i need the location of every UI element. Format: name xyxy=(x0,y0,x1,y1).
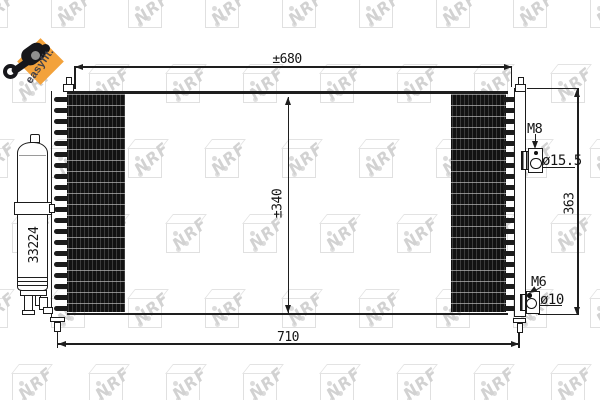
nrf-watermark-tile: NRF xyxy=(239,357,297,400)
fin-stub-left xyxy=(54,284,69,289)
nrf-watermark-tile: NRF xyxy=(355,282,413,340)
dim-side-height-label: 363 xyxy=(563,187,578,221)
part-number-label: 33224 xyxy=(27,220,41,270)
nrf-watermark-tile: NRF xyxy=(547,357,600,400)
nrf-watermark-tile: NRF xyxy=(278,0,336,40)
fin-stub-left xyxy=(54,251,69,256)
nrf-watermark-tile: NRF xyxy=(8,357,66,400)
upper-leader-arrow xyxy=(532,141,538,149)
top-cap-right-base xyxy=(515,84,526,93)
dim-ext-top xyxy=(527,88,579,89)
nrf-watermark-tile: NRF xyxy=(586,132,600,190)
dim-arrow-down xyxy=(285,305,291,313)
fin-stub-left xyxy=(54,273,69,278)
core-fin-block-right xyxy=(451,94,506,312)
nrf-watermark-tile: NRF xyxy=(586,282,600,340)
right-tank xyxy=(514,88,526,317)
thread-label-lower: M6 xyxy=(531,274,546,290)
drier-rib xyxy=(18,285,48,286)
drier-outlet-foot xyxy=(22,310,35,315)
dim-arrow-down xyxy=(574,307,580,315)
nrf-watermark-tile: NRF xyxy=(162,357,220,400)
upper-fitting-dot xyxy=(534,151,539,156)
nrf-watermark-tile: NRF xyxy=(470,357,528,400)
fin-stub-left xyxy=(54,240,69,245)
nrf-watermark-tile: NRF xyxy=(201,282,259,340)
drier-elbow-horizontal xyxy=(43,307,53,314)
dim-arrow-right xyxy=(511,341,519,347)
nrf-watermark-tile: NRF xyxy=(162,207,220,265)
fin-stub-left xyxy=(54,262,69,267)
dim-arrow-up xyxy=(285,97,291,105)
dim-line xyxy=(288,97,290,313)
diameter-label-upper: ø15.5 xyxy=(542,153,582,169)
nrf-watermark-tile: NRF xyxy=(509,0,567,40)
fin-stub-left xyxy=(54,295,69,300)
fin-stub-left xyxy=(54,97,69,102)
dim-ext-bottom xyxy=(538,314,579,315)
dim-arrow-left xyxy=(75,64,83,70)
top-cap-left-base xyxy=(63,84,74,93)
dim-arrow-up xyxy=(574,89,580,97)
nrf-watermark-tile: NRF xyxy=(547,57,600,115)
dim-pin-width-label: 710 xyxy=(264,330,312,345)
fin-stub-left xyxy=(54,306,69,311)
thread-label-upper: M8 xyxy=(527,121,542,137)
drier-band xyxy=(14,202,52,215)
fin-stub-left xyxy=(54,108,69,113)
fin-stub-left xyxy=(54,229,69,234)
dim-arrow-left xyxy=(58,341,66,347)
drier-seam xyxy=(19,155,46,156)
nrf-watermark-tile: NRF xyxy=(124,0,182,40)
nrf-watermark-tile: NRF xyxy=(201,132,259,190)
nrf-watermark-tile: NRF xyxy=(124,282,182,340)
nrf-watermark-tile: NRF xyxy=(316,207,374,265)
nrf-watermark-tile: NRF xyxy=(432,0,490,40)
fin-stub-left xyxy=(54,130,69,135)
nrf-watermark-tile: NRF xyxy=(355,132,413,190)
fin-stub-left xyxy=(54,141,69,146)
fin-stub-left xyxy=(54,185,69,190)
dim-line xyxy=(577,89,579,315)
nrf-watermark-tile: NRF xyxy=(393,207,451,265)
nrf-watermark-tile: NRF xyxy=(586,0,600,40)
bottom-pin-left-stem xyxy=(54,322,61,332)
nrf-watermark-tile: NRF xyxy=(201,0,259,40)
fin-stub-left xyxy=(54,174,69,179)
drier-band-tab xyxy=(49,204,55,213)
dim-ext-right xyxy=(518,333,519,348)
bottom-pin-right-stem xyxy=(517,323,524,334)
fin-stub-left xyxy=(54,196,69,201)
nrf-watermark-tile: NRF xyxy=(0,0,28,40)
lower-port-circle xyxy=(526,298,538,310)
nrf-watermark-tile: NRF xyxy=(355,0,413,40)
nrf-watermark-tile: NRF xyxy=(124,132,182,190)
fin-stub-left xyxy=(54,152,69,157)
dim-arrow-right xyxy=(504,64,512,70)
dim-core-height-label: ±340 xyxy=(271,182,286,226)
fin-stub-left xyxy=(54,207,69,212)
core-fin-block-left xyxy=(67,94,125,312)
upper-port-circle xyxy=(530,158,542,170)
fin-stub-left xyxy=(54,163,69,168)
nrf-watermark-tile: NRF xyxy=(316,357,374,400)
core-bottom-bar xyxy=(67,313,508,316)
nrf-watermark-tile: NRF xyxy=(47,0,105,40)
condenser-technical-drawing: NRFNRFNRFNRFNRFNRFNRFNRFNRFNRFNRFNRFNRFN… xyxy=(0,0,600,400)
nrf-watermark-tile: NRF xyxy=(85,357,143,400)
drier-rib xyxy=(18,277,48,278)
diameter-label-lower: ø10 xyxy=(540,292,564,308)
dim-overall-width-label: ±680 xyxy=(260,52,314,67)
nrf-watermark-tile: NRF xyxy=(393,357,451,400)
fin-stub-left xyxy=(54,119,69,124)
fin-stub-left xyxy=(54,218,69,223)
drier-rib xyxy=(18,281,48,282)
core-header-bar xyxy=(67,91,508,94)
lower-fitting-dot xyxy=(527,293,532,298)
